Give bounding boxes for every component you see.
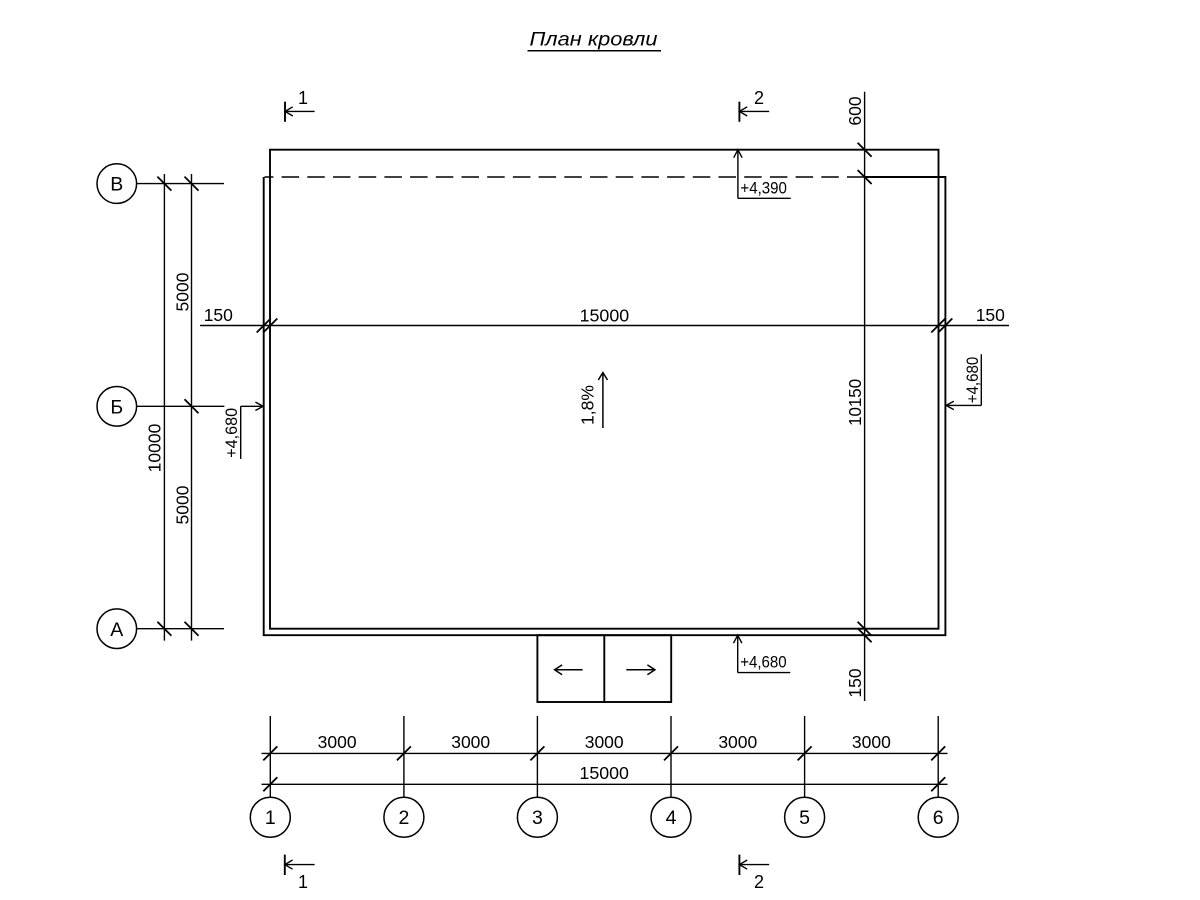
- svg-text:3: 3: [532, 807, 543, 829]
- svg-text:1: 1: [265, 807, 276, 829]
- svg-text:3000: 3000: [852, 732, 891, 752]
- svg-text:2: 2: [754, 872, 764, 892]
- svg-text:+4,680: +4,680: [964, 357, 982, 404]
- svg-text:1: 1: [298, 88, 308, 108]
- svg-text:А: А: [110, 619, 123, 641]
- svg-text:План кровли: План кровли: [530, 29, 658, 51]
- svg-text:Б: Б: [110, 396, 123, 418]
- svg-text:В: В: [110, 174, 123, 196]
- svg-text:10000: 10000: [145, 423, 165, 472]
- svg-text:+4,390: +4,390: [740, 179, 787, 197]
- svg-text:15000: 15000: [579, 763, 629, 783]
- svg-text:150: 150: [976, 305, 1005, 325]
- svg-text:150: 150: [845, 668, 865, 697]
- svg-text:10150: 10150: [845, 379, 865, 426]
- svg-text:2: 2: [398, 807, 409, 829]
- svg-text:5000: 5000: [173, 272, 193, 311]
- svg-text:1,8%: 1,8%: [578, 385, 598, 425]
- svg-text:150: 150: [204, 305, 233, 325]
- svg-text:5000: 5000: [173, 485, 193, 524]
- svg-text:15000: 15000: [580, 306, 630, 326]
- svg-text:+4,680: +4,680: [223, 408, 241, 458]
- svg-text:600: 600: [845, 96, 865, 125]
- svg-text:3000: 3000: [451, 732, 490, 752]
- svg-text:1: 1: [298, 872, 308, 892]
- svg-text:4: 4: [666, 807, 677, 829]
- svg-text:3000: 3000: [318, 732, 357, 752]
- svg-text:6: 6: [933, 807, 944, 829]
- svg-text:+4,680: +4,680: [740, 654, 787, 672]
- svg-text:2: 2: [754, 88, 764, 108]
- svg-text:3000: 3000: [585, 732, 624, 752]
- svg-text:3000: 3000: [718, 732, 757, 752]
- svg-text:5: 5: [799, 807, 810, 829]
